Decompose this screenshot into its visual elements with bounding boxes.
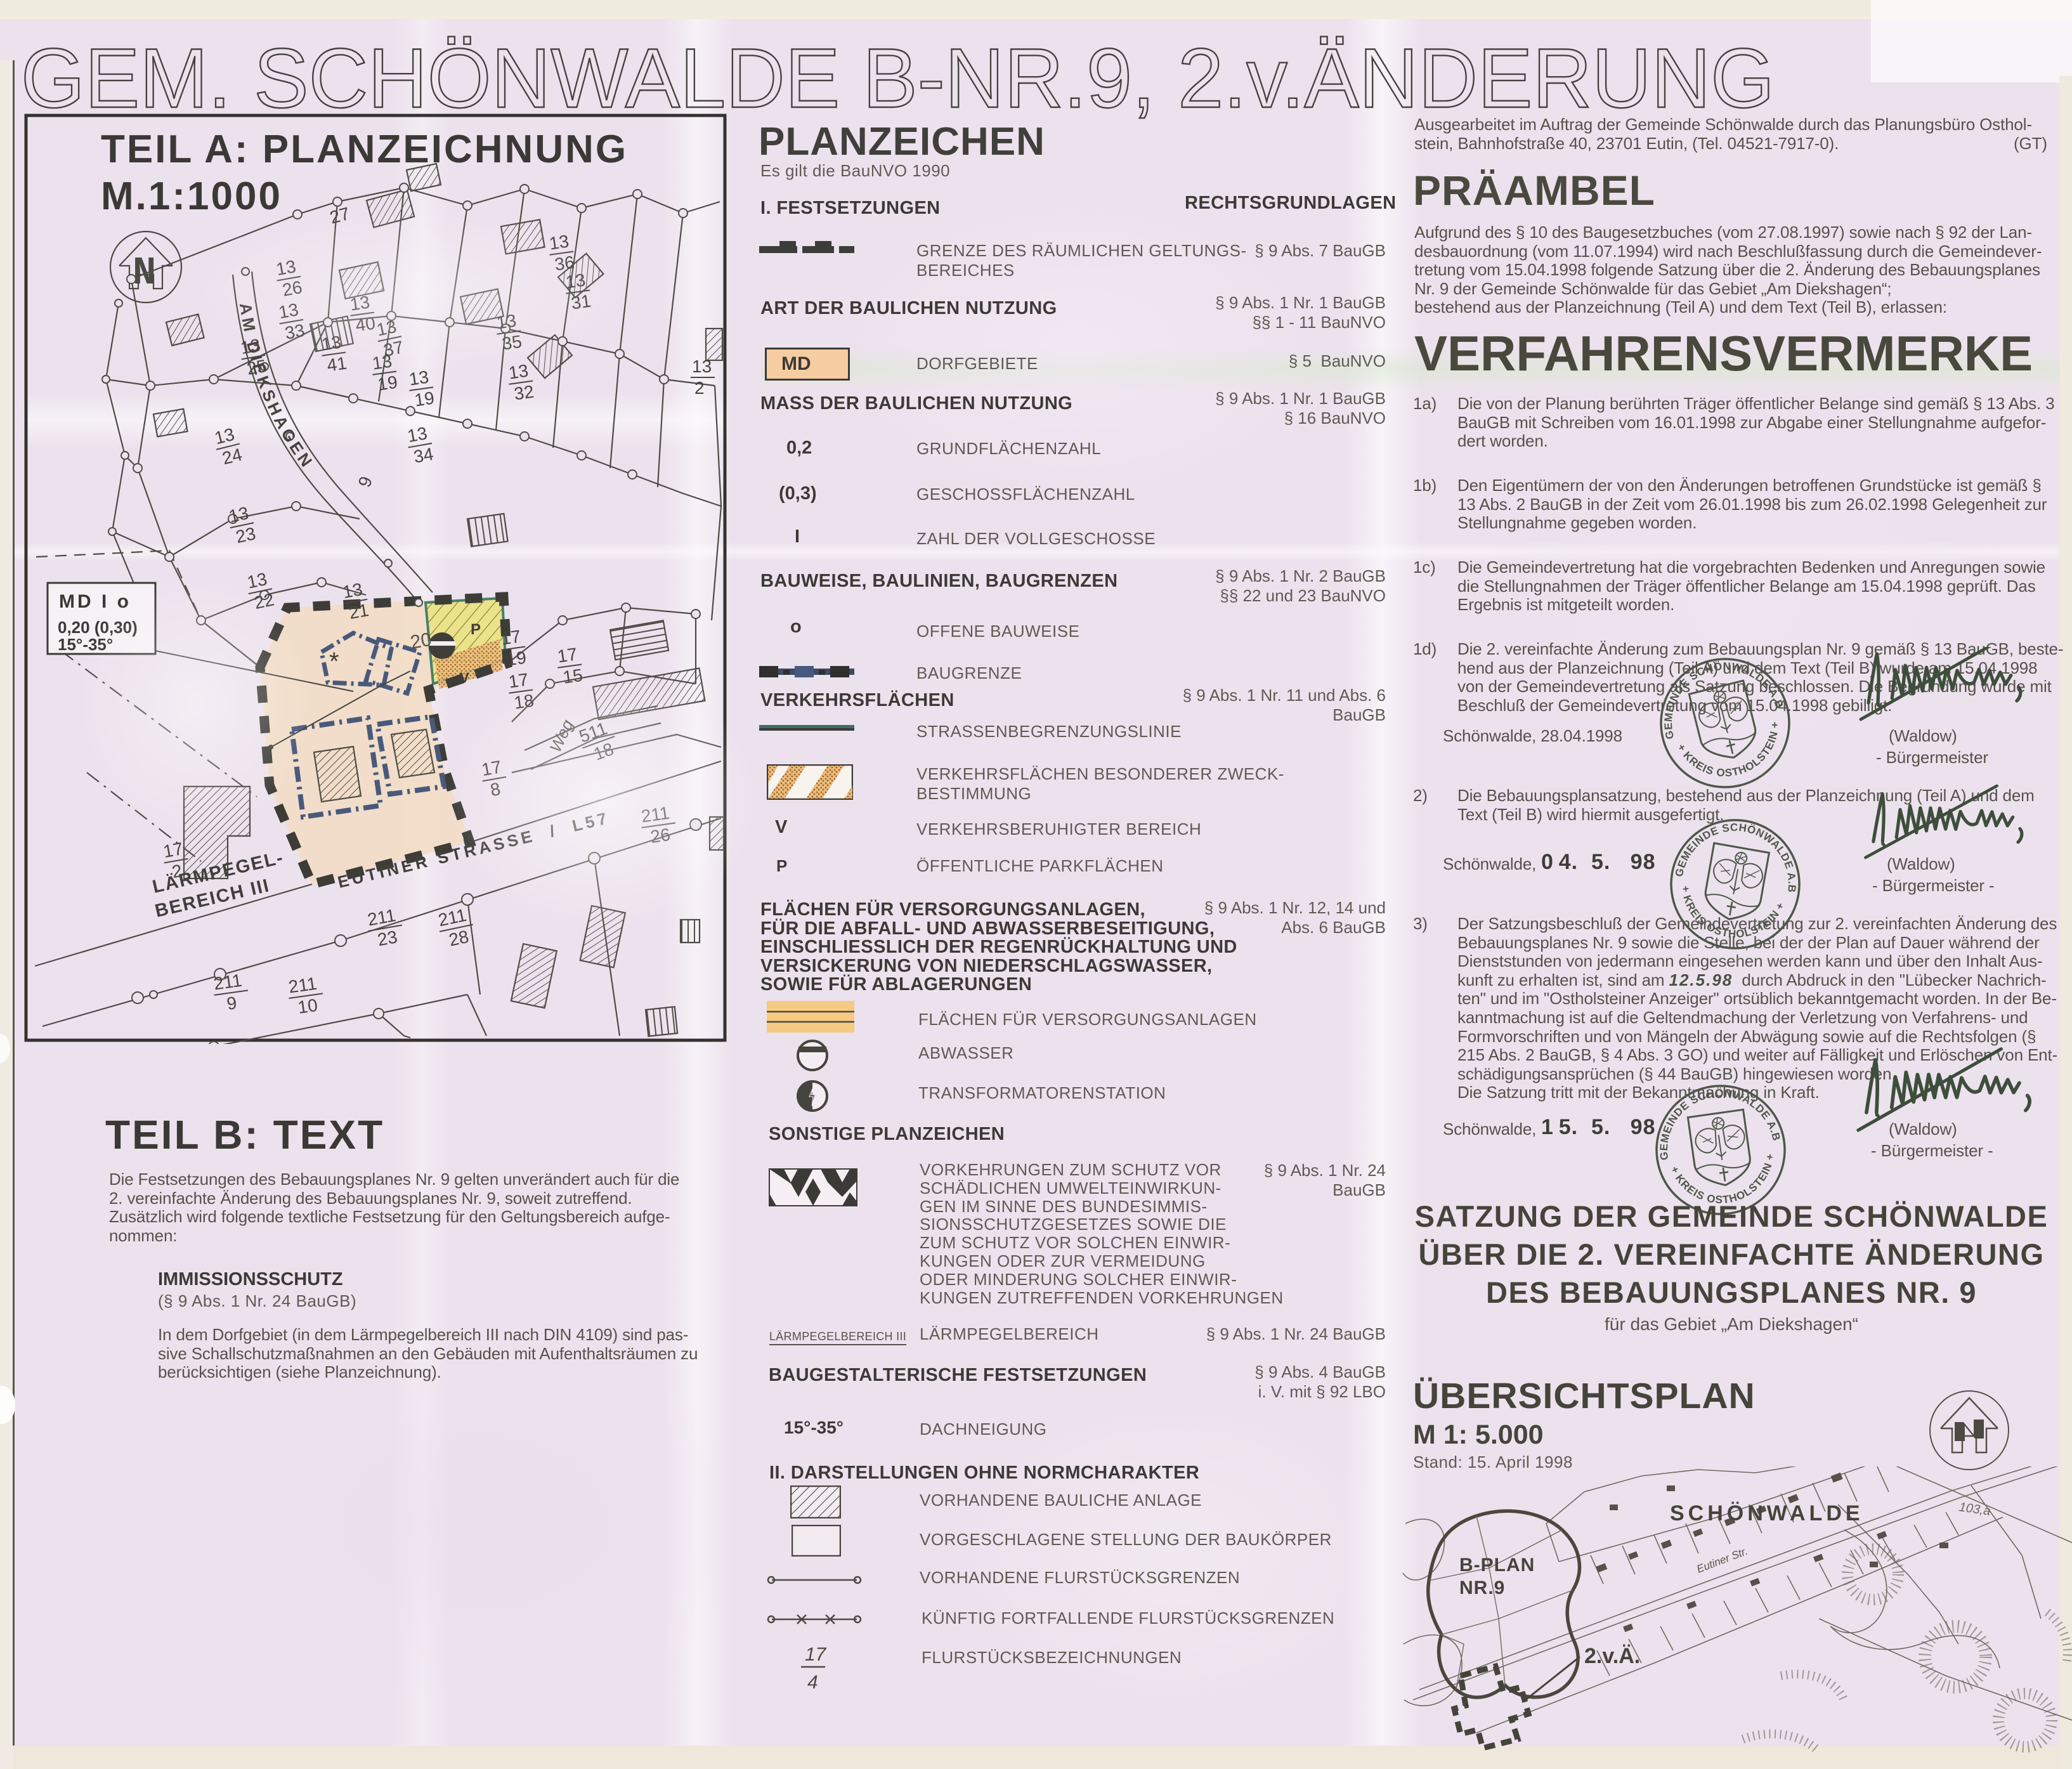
svg-text:17: 17 <box>556 644 578 666</box>
svg-text:9: 9 <box>355 474 376 490</box>
svg-text:211: 211 <box>366 905 397 929</box>
svg-text:GEM. SCHÖNWALDE B-NR.9, 2.v.ÄN: GEM. SCHÖNWALDE B-NR.9, 2.v.ÄNDERUNG <box>21 32 1775 126</box>
svg-text:Eutiner Str.: Eutiner Str. <box>1695 1545 1750 1576</box>
svg-text:103,a: 103,a <box>1958 1500 1991 1518</box>
svg-text:B-PLAN: B-PLAN <box>1459 1555 1535 1576</box>
svg-text:20: 20 <box>408 629 433 653</box>
svg-text:10: 10 <box>297 995 319 1017</box>
svg-text:17: 17 <box>805 1644 827 1665</box>
svg-text:23: 23 <box>376 927 399 950</box>
svg-text:211: 211 <box>287 974 318 997</box>
svg-text:17: 17 <box>162 839 185 861</box>
svg-text:13: 13 <box>227 503 251 526</box>
svg-text:17: 17 <box>500 626 522 648</box>
svg-text:24: 24 <box>220 445 244 469</box>
svg-text:P: P <box>471 621 481 638</box>
svg-text:13: 13 <box>212 424 237 448</box>
svg-text:NR.9: NR.9 <box>1459 1577 1505 1598</box>
svg-text:32: 32 <box>513 382 535 404</box>
svg-text:2: 2 <box>694 378 705 398</box>
svg-text:13: 13 <box>406 423 429 446</box>
svg-text:34: 34 <box>412 444 435 467</box>
svg-text:13: 13 <box>341 579 364 602</box>
svg-text:211: 211 <box>212 970 244 994</box>
svg-text:SCHÖNWALDE: SCHÖNWALDE <box>1670 1501 1864 1525</box>
svg-text:19: 19 <box>414 388 436 410</box>
svg-text:21: 21 <box>348 600 370 623</box>
svg-text:*: * <box>329 648 339 676</box>
svg-text:9: 9 <box>226 993 238 1014</box>
svg-text:N: N <box>133 251 156 296</box>
svg-text:TEIL A: PLANZEICHNUNG: TEIL A: PLANZEICHNUNG <box>101 127 628 171</box>
svg-text:4: 4 <box>807 1672 818 1692</box>
svg-text:13: 13 <box>692 356 712 376</box>
svg-text:19: 19 <box>377 372 399 395</box>
svg-text:2.v.Ä.: 2.v.Ä. <box>1584 1644 1640 1668</box>
svg-text:23: 23 <box>234 523 257 547</box>
